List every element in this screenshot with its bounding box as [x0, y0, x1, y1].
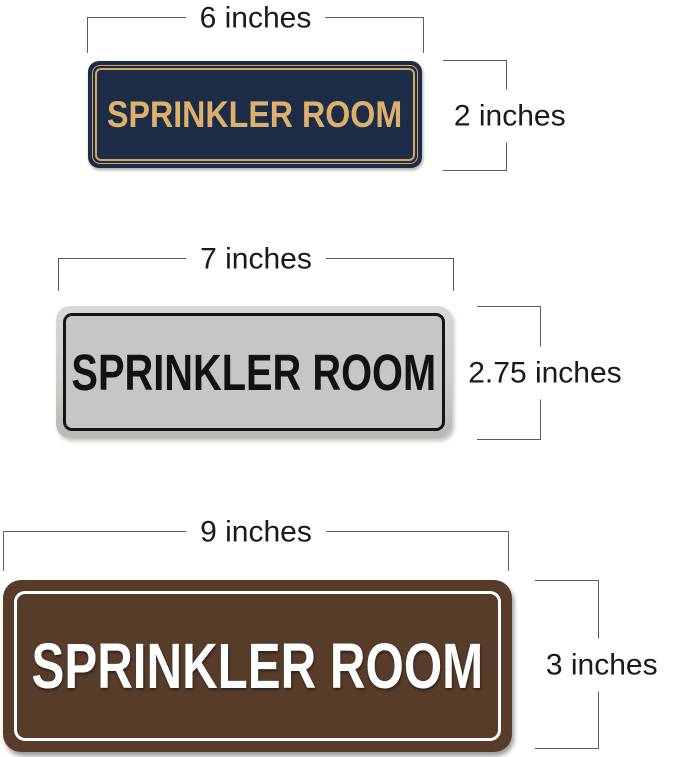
- width-dimension-label: 7 inches: [186, 243, 326, 276]
- width-dimension-label: 6 inches: [186, 2, 326, 35]
- width-dimension-bracket-9in: 9 inches: [3, 531, 509, 571]
- sign-navy-6x2: SPRINKLER ROOM: [88, 61, 422, 168]
- height-dimension-bracket-275in: 2.75 inches: [477, 306, 541, 440]
- width-dimension-bracket-7in: 7 inches: [58, 258, 454, 291]
- height-dimension-label: 2.75 inches: [462, 347, 627, 400]
- height-dimension-bracket-2in: 2 inches: [443, 60, 507, 171]
- sign-size-comparison-diagram: 6 inches SPRINKLER ROOM 2 inches 7 inche…: [0, 0, 679, 757]
- sign-walnut-9x3: SPRINKLER ROOM: [3, 580, 512, 752]
- height-dimension-label: 3 inches: [540, 638, 664, 691]
- sign-silver-7x275: SPRINKLER ROOM: [56, 306, 452, 438]
- height-dimension-label: 2 inches: [448, 89, 572, 142]
- sign-label: SPRINKLER ROOM: [72, 347, 437, 398]
- sign-label: SPRINKLER ROOM: [32, 634, 484, 698]
- sign-label: SPRINKLER ROOM: [107, 96, 402, 133]
- width-dimension-bracket-6in: 6 inches: [87, 17, 424, 53]
- width-dimension-label: 9 inches: [186, 516, 326, 549]
- height-dimension-bracket-3in: 3 inches: [535, 580, 599, 749]
